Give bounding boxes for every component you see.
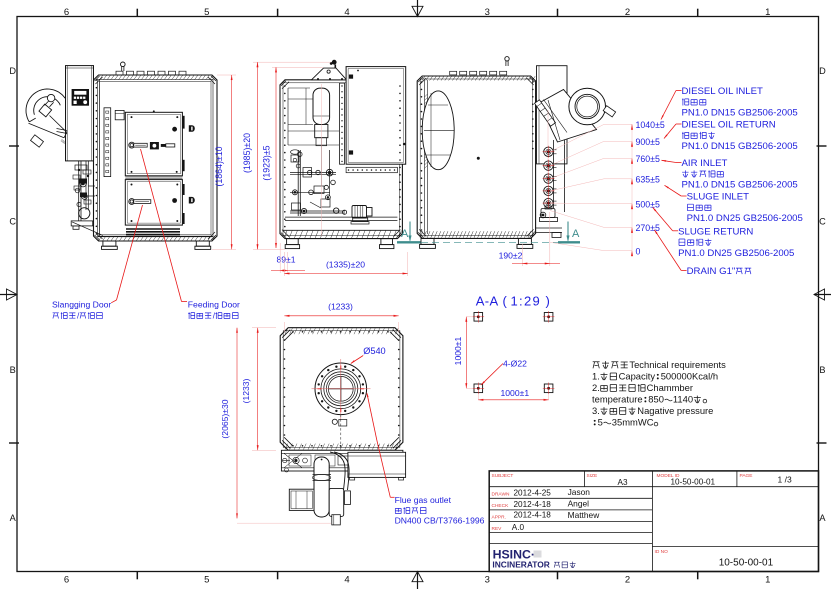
svg-text:(1233): (1233) <box>328 302 353 312</box>
svg-text:B: B <box>819 365 825 375</box>
svg-text:A: A <box>572 228 580 240</box>
svg-text:(: ( <box>503 294 508 309</box>
svg-text:PN1.0 DN25 GB2506-2005: PN1.0 DN25 GB2506-2005 <box>678 248 794 259</box>
svg-text:500000Kcal/h: 500000Kcal/h <box>661 371 718 382</box>
svg-text:DRAIN G1": DRAIN G1" <box>687 266 736 277</box>
svg-text:6: 6 <box>64 7 69 18</box>
svg-text:Jason: Jason <box>568 487 591 497</box>
svg-text:PN1.0 DN15 GB2506-2005: PN1.0 DN15 GB2506-2005 <box>682 141 798 152</box>
svg-text:Nagative pressure: Nagative pressure <box>637 405 713 416</box>
svg-text:1: 1 <box>765 7 770 18</box>
svg-text:2: 2 <box>625 575 630 586</box>
svg-text:SLUGE INLET: SLUGE INLET <box>687 192 750 203</box>
svg-text:10-50-00-01: 10-50-00-01 <box>671 478 716 487</box>
svg-text:1:29: 1:29 <box>511 294 542 309</box>
svg-text:DIESEL OIL INLET: DIESEL OIL INLET <box>682 86 764 97</box>
svg-text:A-A: A-A <box>476 294 499 309</box>
svg-text:PN1.0 DN25 GB2506-2005: PN1.0 DN25 GB2506-2005 <box>687 213 803 224</box>
svg-text:6: 6 <box>64 575 69 586</box>
svg-text:SLUGE RETURN: SLUGE RETURN <box>678 226 753 237</box>
svg-text:Ø540: Ø540 <box>363 346 385 356</box>
svg-text:D: D <box>9 66 16 76</box>
svg-text:3.: 3. <box>592 405 600 416</box>
svg-text:(1923)±5: (1923)±5 <box>262 145 272 180</box>
svg-text:900±5: 900±5 <box>636 137 661 147</box>
svg-text:3: 3 <box>485 575 490 586</box>
svg-text:Technical requirements: Technical requirements <box>629 359 726 370</box>
svg-text:760±5: 760±5 <box>636 154 661 164</box>
svg-text:AIR INLET: AIR INLET <box>682 158 728 169</box>
svg-text:CHECK: CHECK <box>492 503 510 509</box>
svg-text:APPR.: APPR. <box>492 515 506 521</box>
svg-text:Capacity: Capacity <box>619 371 656 382</box>
svg-text:2012-4-18: 2012-4-18 <box>514 511 552 520</box>
svg-text:DN400 CB/T3766-1996: DN400 CB/T3766-1996 <box>395 515 485 525</box>
svg-text:89±1: 89±1 <box>276 255 295 265</box>
svg-text:SIZE: SIZE <box>587 473 598 479</box>
svg-text:ID NO: ID NO <box>655 549 669 555</box>
svg-text:Chammber: Chammber <box>647 382 693 393</box>
svg-text:PN1.0 DN15 GB2506-2005: PN1.0 DN15 GB2506-2005 <box>682 180 798 191</box>
svg-text:1.: 1. <box>592 371 600 382</box>
svg-text:35mmWC: 35mmWC <box>612 417 654 428</box>
svg-text:(1233): (1233) <box>241 378 251 403</box>
svg-text:Angel: Angel <box>568 498 590 508</box>
svg-text:(1335)±20: (1335)±20 <box>326 260 365 270</box>
svg-text:1040±5: 1040±5 <box>636 120 665 130</box>
svg-text:temperature: temperature <box>592 394 643 405</box>
svg-text:): ) <box>546 294 550 309</box>
svg-text:635±5: 635±5 <box>636 175 661 185</box>
svg-text:A: A <box>819 513 826 523</box>
svg-text:PAGE: PAGE <box>740 473 753 479</box>
svg-text:3: 3 <box>485 7 490 18</box>
svg-text:Matthew: Matthew <box>568 510 601 520</box>
svg-text:190±2: 190±2 <box>499 251 523 261</box>
svg-text:850: 850 <box>648 394 664 405</box>
svg-text:DIESEL OIL RETURN: DIESEL OIL RETURN <box>682 120 776 131</box>
svg-text:2012-4-25: 2012-4-25 <box>514 488 552 497</box>
svg-text:REV: REV <box>492 526 503 532</box>
svg-text:A: A <box>401 228 409 240</box>
svg-text:B: B <box>10 365 16 375</box>
svg-text:A3: A3 <box>618 478 628 487</box>
svg-text:500±5: 500±5 <box>636 199 661 209</box>
svg-text:4-Ø22: 4-Ø22 <box>503 359 527 369</box>
svg-text:A: A <box>10 513 17 523</box>
svg-text:DRAWN: DRAWN <box>492 491 510 497</box>
svg-text:Feeding Door: Feeding Door <box>188 300 240 310</box>
svg-text:4: 4 <box>344 575 349 586</box>
svg-text:1: 1 <box>765 575 770 586</box>
svg-text:(2065)±30: (2065)±30 <box>220 399 230 438</box>
svg-text:PN1.0 DN15 GB2506-2005: PN1.0 DN15 GB2506-2005 <box>682 108 798 119</box>
svg-text:2012-4-18: 2012-4-18 <box>514 500 552 509</box>
svg-text:(1985)±20: (1985)±20 <box>242 133 252 173</box>
svg-text:D: D <box>819 66 826 76</box>
svg-text:4: 4 <box>344 7 349 18</box>
svg-text:C: C <box>819 217 826 227</box>
svg-text:2: 2 <box>625 7 630 18</box>
svg-text:5: 5 <box>598 417 603 428</box>
svg-text:5: 5 <box>204 575 209 586</box>
svg-text:SUBJECT: SUBJECT <box>492 473 514 479</box>
svg-text:1140: 1140 <box>673 394 693 405</box>
svg-text:1000±1: 1000±1 <box>500 388 529 398</box>
svg-text:5: 5 <box>204 7 209 18</box>
svg-text:0: 0 <box>636 246 641 256</box>
svg-text:1000±1: 1000±1 <box>453 336 463 365</box>
svg-text:270±5: 270±5 <box>636 223 661 233</box>
svg-text:10-50-00-01: 10-50-00-01 <box>719 558 774 569</box>
svg-text:Flue gas outlet: Flue gas outlet <box>395 495 452 505</box>
svg-text:Slangging Door: Slangging Door <box>52 300 111 310</box>
svg-text:A.0: A.0 <box>512 523 525 532</box>
svg-text:INCINERATOR: INCINERATOR <box>492 559 549 569</box>
svg-text:1 /3: 1 /3 <box>778 475 792 485</box>
svg-text:C: C <box>9 217 16 227</box>
svg-text:(1864)±10: (1864)±10 <box>214 146 224 186</box>
svg-text:2.: 2. <box>592 382 600 393</box>
